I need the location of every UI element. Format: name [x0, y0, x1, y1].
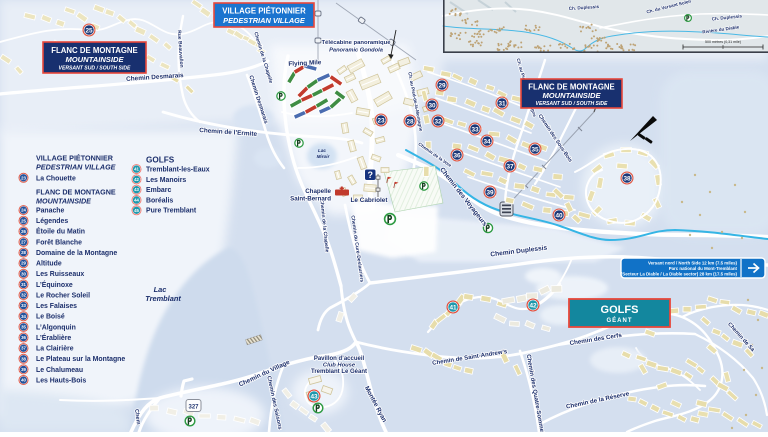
svg-text:L’Érablière: L’Érablière	[36, 333, 71, 342]
svg-text:25: 25	[85, 27, 93, 34]
svg-text:38: 38	[21, 356, 26, 361]
svg-text:38: 38	[623, 175, 631, 182]
svg-text:Le Plateau sur la Montagne: Le Plateau sur la Montagne	[36, 356, 125, 363]
svg-text:Tremblant: Tremblant	[145, 294, 181, 303]
svg-text:Tremblant Le Géant: Tremblant Le Géant	[311, 369, 367, 375]
svg-text:VERSANT SUD / SOUTH SIDE: VERSANT SUD / SOUTH SIDE	[59, 65, 131, 71]
svg-text:327: 327	[188, 405, 199, 411]
svg-text:Embarc: Embarc	[146, 187, 171, 194]
svg-text:27: 27	[21, 240, 26, 245]
svg-text:GÉANT: GÉANT	[607, 316, 633, 324]
svg-text:VILLAGE PIÉTONNIER: VILLAGE PIÉTONNIER	[222, 7, 306, 16]
svg-text:37: 37	[506, 163, 514, 170]
svg-text:24: 24	[21, 208, 26, 213]
svg-text:Versant nord / North Side 12 k: Versant nord / North Side 12 km (7.5 mil…	[648, 261, 738, 266]
svg-text:43: 43	[310, 393, 318, 400]
svg-text:31: 31	[498, 100, 506, 107]
svg-text:MOUNTAINSIDE: MOUNTAINSIDE	[65, 55, 124, 64]
svg-text:35: 35	[21, 325, 26, 330]
svg-text:44: 44	[134, 198, 139, 203]
svg-text:GOLFS: GOLFS	[146, 156, 175, 165]
svg-text:26: 26	[21, 229, 26, 234]
svg-text:23: 23	[21, 175, 26, 180]
svg-text:31: 31	[21, 282, 26, 287]
svg-text:MOUNTAINSIDE: MOUNTAINSIDE	[36, 197, 91, 206]
svg-text:45: 45	[134, 208, 139, 213]
svg-text:VILLAGE PIÉTONNIER: VILLAGE PIÉTONNIER	[36, 154, 114, 163]
svg-text:Les Ruisseaux: Les Ruisseaux	[36, 271, 84, 278]
svg-text:FLANC DE MONTAGNE: FLANC DE MONTAGNE	[36, 188, 116, 197]
svg-text:La Chouette: La Chouette	[36, 175, 76, 182]
svg-text:41: 41	[449, 304, 457, 311]
svg-text:32: 32	[434, 118, 442, 125]
svg-text:Lac: Lac	[154, 285, 167, 294]
svg-text:28: 28	[406, 118, 414, 125]
svg-text:Boréalis: Boréalis	[146, 197, 173, 204]
svg-text:32: 32	[21, 293, 26, 298]
svg-text:Le Cabriolet: Le Cabriolet	[351, 197, 389, 204]
svg-text:Panache: Panache	[36, 208, 65, 215]
svg-text:L’Équinoxe: L’Équinoxe	[36, 280, 73, 289]
svg-text:42: 42	[134, 177, 139, 182]
svg-text:Le Chalumeau: Le Chalumeau	[36, 367, 83, 374]
svg-text:25: 25	[21, 218, 26, 223]
svg-text:29: 29	[21, 261, 26, 266]
svg-text:Pure Tremblant: Pure Tremblant	[146, 208, 197, 215]
svg-text:36: 36	[21, 335, 26, 340]
svg-text:Les Hauts-Bois: Les Hauts-Bois	[36, 377, 86, 384]
svg-text:43: 43	[134, 187, 139, 192]
svg-text:Télécabine panoramique: Télécabine panoramique	[321, 40, 391, 46]
svg-text:23: 23	[377, 117, 385, 124]
svg-text:Tremblant-les-Eaux: Tremblant-les-Eaux	[146, 167, 210, 174]
svg-text:FLANC DE MONTAGNE: FLANC DE MONTAGNE	[51, 46, 137, 55]
svg-text:33: 33	[471, 126, 479, 133]
svg-text:28: 28	[21, 250, 26, 255]
svg-text:La Clairière: La Clairière	[36, 346, 74, 353]
svg-text:39: 39	[21, 367, 26, 372]
svg-text:Panoramic Gondola: Panoramic Gondola	[329, 48, 383, 54]
svg-text:Miroir: Miroir	[317, 154, 330, 159]
svg-text:L’Algonquin: L’Algonquin	[36, 324, 76, 331]
svg-text:29: 29	[438, 82, 446, 89]
svg-text:40: 40	[555, 212, 563, 219]
svg-text:Parc national du Mont-Tremblan: Parc national du Mont-Tremblant	[669, 266, 738, 271]
svg-text:Le Rocher Soleil: Le Rocher Soleil	[36, 293, 90, 300]
svg-text:Altitude: Altitude	[36, 261, 62, 268]
svg-text:Légendes: Légendes	[36, 218, 68, 225]
svg-text:Club House: Club House	[323, 363, 356, 369]
svg-text:35: 35	[531, 146, 539, 153]
svg-text:Saint-Bernard: Saint-Bernard	[290, 196, 331, 203]
svg-text:Lac: Lac	[318, 148, 326, 153]
svg-text:37: 37	[21, 346, 26, 351]
svg-text:30: 30	[428, 102, 436, 109]
svg-text:Le Boisé: Le Boisé	[36, 314, 65, 321]
svg-text:VERSANT SUD / SOUTH SIDE: VERSANT SUD / SOUTH SIDE	[536, 101, 608, 107]
svg-text:39: 39	[486, 189, 494, 196]
svg-text:33: 33	[21, 303, 26, 308]
svg-text:Étoile du Matin: Étoile du Matin	[36, 227, 85, 236]
svg-text:?: ?	[367, 170, 373, 180]
svg-text:Les Falaises: Les Falaises	[36, 303, 77, 310]
svg-text:PEDESTRIAN VILLAGE: PEDESTRIAN VILLAGE	[223, 16, 306, 25]
svg-text:Domaine de la Montagne: Domaine de la Montagne	[36, 250, 117, 257]
svg-text:MOUNTAINSIDE: MOUNTAINSIDE	[542, 91, 601, 100]
svg-text:30: 30	[21, 271, 26, 276]
svg-text:GOLFS: GOLFS	[601, 304, 639, 316]
svg-text:Les Manoirs: Les Manoirs	[146, 177, 186, 184]
svg-text:36: 36	[453, 152, 461, 159]
svg-text:34: 34	[483, 138, 491, 145]
svg-text:Chapelle: Chapelle	[305, 188, 331, 195]
svg-text:Forêt Blanche: Forêt Blanche	[36, 239, 82, 246]
svg-text:Pavillon d’accueil: Pavillon d’accueil	[314, 356, 365, 362]
svg-text:42: 42	[529, 302, 537, 309]
svg-text:PEDESTRIAN VILLAGE: PEDESTRIAN VILLAGE	[36, 163, 116, 172]
svg-text:(Secteur La Diable / La Diable: (Secteur La Diable / La Diable sector) 2…	[621, 272, 738, 277]
svg-text:41: 41	[134, 167, 139, 172]
svg-text:40: 40	[21, 378, 26, 383]
svg-text:500 mètres (0,31 mile): 500 mètres (0,31 mile)	[705, 40, 741, 44]
svg-text:34: 34	[21, 314, 26, 319]
